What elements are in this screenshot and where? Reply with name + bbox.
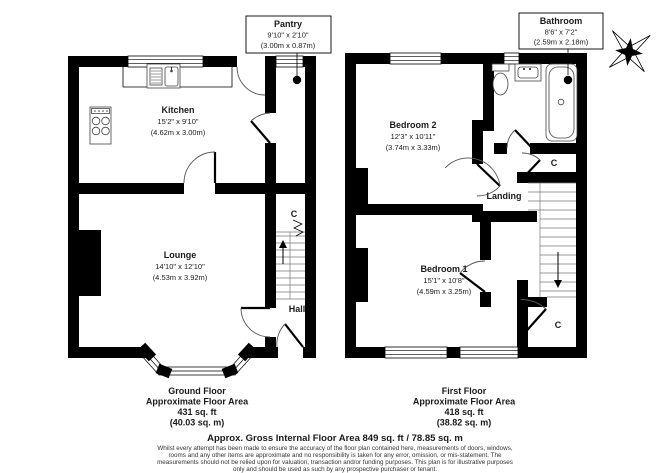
ground-floor-walls [68,56,316,358]
bedroom2-window [390,53,441,64]
cupboard-bottom-label: C [555,320,562,330]
svg-text:431 sq. ft: 431 sq. ft [177,407,216,417]
kitchen-sink-symbol [147,64,180,88]
bedroom1-window [460,347,518,358]
pantry-top-door-arc [237,67,265,95]
cupboard-top-label: C [551,158,558,168]
footer-disclaimer-line: rooms and any other items are approximat… [168,452,502,459]
ground-cupboard-label: C [291,209,298,219]
first-floor-summary: First Floor Approximate Floor Area 418 s… [413,386,516,428]
floorplan-drawing: Kitchen 15'2" x 9'10" (4.62m x 3.00m) Lo… [0,0,670,473]
bedroom1-window [385,347,447,358]
pantry-window [276,56,303,67]
svg-text:14'10" x 12'10": 14'10" x 12'10" [155,262,205,271]
svg-text:Bedroom 1: Bedroom 1 [420,264,467,274]
svg-text:Ground Floor: Ground Floor [168,386,226,396]
bedroom2-label: Bedroom 2 12'3" x 10'11" (3.74m x 3.33m) [386,120,441,152]
hall-label: Hall [289,304,306,314]
svg-text:Bedroom 2: Bedroom 2 [389,120,436,130]
pantry-lower-door-arc [251,113,270,143]
ground-floor-stairs [276,232,305,299]
front-door-arc [277,324,303,347]
stairs-down-arrow-icon [554,252,562,288]
footer-disclaimer-line: Whilst every attempt has been made to en… [157,445,513,452]
bathroom-leader-dot [564,76,572,84]
svg-text:(40.03 sq. m): (40.03 sq. m) [170,418,225,428]
svg-text:Approximate Floor Area: Approximate Floor Area [413,397,516,407]
bay-window [138,343,256,379]
footer-title: Approx. Gross Internal Floor Area 849 sq… [207,433,463,444]
lounge-label: Lounge 14'10" x 12'10" (4.53m x 3.92m) [153,250,208,282]
svg-text:418 sq. ft: 418 sq. ft [444,407,483,417]
pantry-leader-dot [293,76,301,84]
kitchen-lounge-door-arc [184,152,215,183]
toilet-symbol [492,64,509,95]
svg-text:Approximate Floor Area: Approximate Floor Area [146,397,249,407]
svg-text:15'1" x 10'8": 15'1" x 10'8" [423,276,464,285]
first-floor-plan: Bedroom 2 12'3" x 10'11" (3.74m x 3.33m)… [345,13,603,428]
footer-disclaimer-line: measurements should not be relied upon f… [157,459,513,466]
svg-text:(4.53m x 3.92m): (4.53m x 3.92m) [153,273,208,282]
kitchen-label: Kitchen 15'2" x 9'10" (4.62m x 3.00m) [151,105,206,137]
lounge-hall-door-arc [241,308,270,337]
svg-text:15'2" x 9'10": 15'2" x 9'10" [157,117,198,126]
bathroom-window [504,53,519,64]
svg-text:(3.00m x 0.87m): (3.00m x 0.87m) [261,41,316,50]
bedroom1-label: Bedroom 1 15'1" x 10'8" (4.59m x 3.25m) [417,264,472,296]
first-floor-stairs [528,183,576,297]
chimney-breast [356,248,368,302]
pantry-label-box: Pantry 9'10" x 2'10" (3.00m x 0.87m) [246,16,331,53]
svg-text:Bathroom: Bathroom [540,16,583,26]
basin-symbol [515,64,541,81]
bathroom-label-box: Bathroom 8'6" x 7'2" (2.59m x 2.18m) [519,13,603,49]
landing-label: Landing [487,191,522,201]
svg-text:8'6" x 7'2": 8'6" x 7'2" [545,28,578,37]
chimney-breast [356,168,368,210]
svg-text:Pantry: Pantry [274,19,302,29]
floorplan-page: Kitchen 15'2" x 9'10" (4.62m x 3.00m) Lo… [0,0,670,473]
bathtub-symbol [546,64,577,141]
svg-text:(3.74m x 3.33m): (3.74m x 3.33m) [386,143,441,152]
compass-rose-icon [593,14,666,87]
cupboard-front-squiggle [293,220,303,236]
svg-text:(4.59m x 3.25m): (4.59m x 3.25m) [417,287,472,296]
svg-text:Lounge: Lounge [164,250,197,260]
stove-symbol [90,107,111,144]
svg-text:(38.82 sq. m): (38.82 sq. m) [437,418,492,428]
ground-floor-plan: Kitchen 15'2" x 9'10" (4.62m x 3.00m) Lo… [68,16,331,428]
svg-text:First Floor: First Floor [442,386,487,396]
bathroom-door-arc [507,130,532,148]
stairs-up-arrow-icon [279,240,287,264]
svg-text:(2.59m x 2.18m): (2.59m x 2.18m) [534,38,589,47]
chimney-breast [79,230,101,296]
svg-text:12'3" x 10'11": 12'3" x 10'11" [391,132,436,141]
svg-text:Kitchen: Kitchen [161,105,194,115]
footer-disclaimer-line: only and should be used as such by any p… [233,466,437,473]
svg-text:(4.62m x 3.00m): (4.62m x 3.00m) [151,128,206,137]
svg-text:9'10" x 2'10": 9'10" x 2'10" [267,31,308,40]
ground-floor-summary: Ground Floor Approximate Floor Area 431 … [146,386,249,428]
footer: Approx. Gross Internal Floor Area 849 sq… [157,433,513,473]
